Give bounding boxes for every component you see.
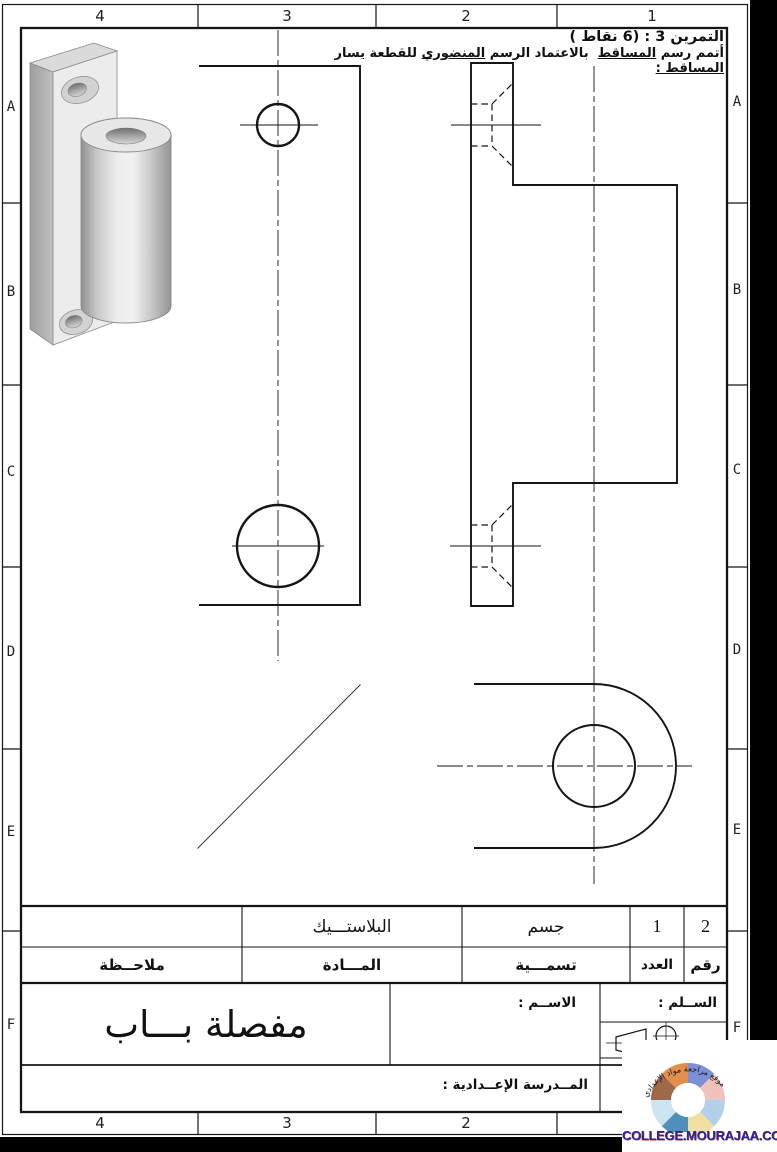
bottom-view (437, 684, 692, 848)
zone-row-c-right: C (733, 462, 741, 478)
zone-col-4-top: 4 (95, 7, 105, 25)
number-label: رقم (684, 949, 727, 981)
zone-col-3-bottom: 3 (282, 1114, 292, 1132)
zone-row-b-left: B (7, 284, 15, 300)
zone-col-3-top: 3 (282, 7, 292, 25)
drawing-sheet: 4 3 2 1 4 3 2 A B C D E F A B C D E F ال… (0, 0, 777, 1152)
side-view (450, 63, 677, 884)
exercise-heading: التمرين 3 : (6 نقاط ) أتمم رسم المساقط ب… (284, 29, 724, 76)
instruction-seg: أتمم رسم (656, 46, 724, 61)
zone-row-d-left: D (7, 644, 15, 660)
instruction-seg-underlined: المساقط : (656, 61, 724, 76)
isometric-part-pictorial (24, 33, 189, 373)
part-name: مفصلة بـــاب (22, 985, 390, 1063)
miter-line (198, 685, 361, 849)
exercise-instruction: أتمم رسم المساقط بالاعتماد الرسم المنضور… (284, 46, 724, 76)
front-view (199, 30, 360, 661)
zone-row-e-left: E (7, 824, 15, 840)
instruction-seg: للقطعة يسار (330, 46, 421, 61)
designation-value: جسم (462, 908, 630, 945)
zone-row-e-right: E (733, 822, 741, 838)
zone-row-d-right: D (733, 642, 741, 658)
site-url-text: COLLEGE.MOURAJAA.COM (622, 1128, 777, 1143)
scale-label: الســلم : (600, 995, 727, 1011)
name-label: الاســم : (390, 995, 590, 1011)
zone-row-a-right: A (733, 94, 741, 110)
exercise-title: التمرين 3 : (6 نقاط ) (284, 29, 724, 45)
zone-col-2-bottom: 2 (461, 1114, 471, 1132)
note-label: ملاحــظة (22, 949, 242, 981)
instruction-seg-underlined: المساقط (598, 46, 657, 61)
scan-black-edge-bottom (0, 1137, 622, 1152)
zone-col-2-top: 2 (461, 7, 471, 25)
site-logo: موقع مراجعة مواد الإعدادي COLLEGE.MOURAJ… (622, 1040, 777, 1152)
logo-ring: موقع مراجعة مواد الإعدادي (622, 1040, 777, 1132)
zone-row-a-left: A (7, 99, 15, 115)
zone-row-b-right: B (733, 282, 741, 298)
material-value: البلاستـــيك (242, 908, 462, 945)
zone-col-4-bottom: 4 (95, 1114, 105, 1132)
quantity-label: العدد (630, 949, 684, 981)
instruction-seg: بالاعتماد الرسم (485, 46, 597, 61)
material-label: المـــادة (242, 949, 462, 981)
quantity-value: 1 (630, 908, 684, 945)
zone-row-f-left: F (7, 1017, 15, 1033)
zone-row-c-left: C (7, 464, 15, 480)
zone-row-f-right: F (733, 1020, 741, 1036)
designation-label: تسمـــية (462, 949, 630, 981)
school-label: المــدرسة الإعــدادية : (300, 1077, 596, 1093)
zone-col-1-top: 1 (647, 7, 657, 25)
number-value: 2 (684, 908, 727, 945)
scan-black-edge-right (750, 0, 777, 1042)
instruction-seg-underlined: المنضوري (422, 46, 486, 61)
